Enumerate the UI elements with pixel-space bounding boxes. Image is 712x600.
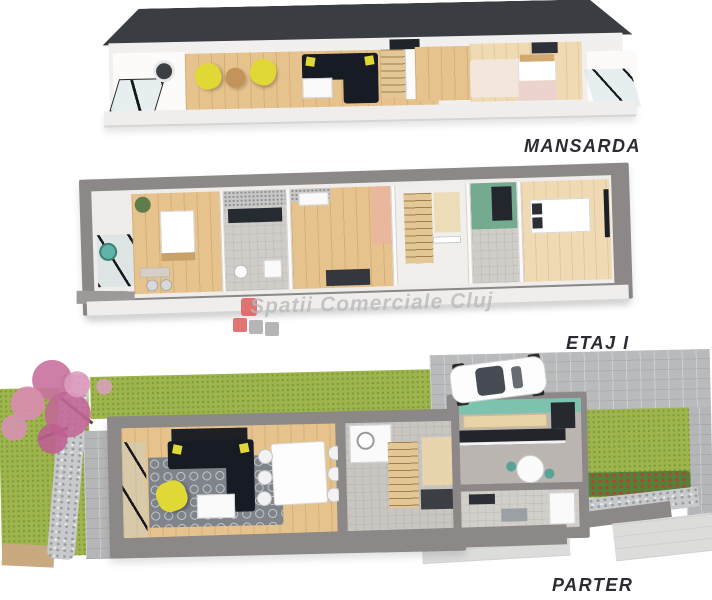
- armchair: [247, 56, 280, 89]
- attic-bedroom-floor: [470, 42, 583, 102]
- powder-room: [349, 424, 392, 463]
- stairwell: [395, 184, 468, 286]
- staircase: [388, 442, 419, 509]
- washer: [356, 432, 374, 450]
- upper-cabinets: [463, 414, 547, 429]
- sofa-cushion: [239, 443, 250, 454]
- bedroom2-floor: [290, 186, 393, 289]
- entry-mat: [421, 489, 453, 510]
- dining-table: [271, 441, 328, 506]
- bedroom-rug: [470, 59, 523, 98]
- bed-foot: [161, 252, 195, 261]
- washing-machine: [264, 259, 283, 278]
- bathroom2-floor: [470, 182, 519, 283]
- round-stove: [153, 60, 175, 82]
- label-parter: PARTER: [552, 576, 633, 594]
- sofa-cushion: [364, 55, 374, 65]
- stair-landing: [422, 437, 453, 486]
- dresser: [298, 192, 328, 206]
- kitchen: [459, 398, 583, 485]
- bedroom3-floor: [521, 179, 612, 282]
- stool: [160, 279, 172, 291]
- car-cabin: [475, 365, 506, 396]
- vanity: [228, 207, 282, 223]
- bed-pillow: [532, 217, 542, 228]
- logo-block-red: [233, 318, 247, 332]
- coffee-table: [197, 494, 236, 519]
- tree-blossom: [64, 371, 91, 398]
- plant: [134, 197, 150, 213]
- vanity: [469, 494, 495, 505]
- glass-door: [97, 234, 135, 287]
- staircase: [403, 193, 433, 264]
- kitchen-table: [516, 455, 545, 484]
- fridge: [551, 402, 576, 429]
- bed-bench: [520, 54, 554, 62]
- attic-hall-floor: [415, 46, 471, 101]
- tree-blossom: [37, 424, 68, 455]
- label-etaj1: ETAJ I: [566, 334, 630, 352]
- kitchen-counter: [459, 428, 565, 445]
- bed-pillow: [532, 203, 542, 214]
- coffee-table-round: [225, 68, 245, 88]
- stair-railing: [433, 236, 461, 244]
- stair-landing: [433, 192, 460, 233]
- tree-blossom: [96, 379, 112, 395]
- toilet: [234, 265, 248, 279]
- kitchen-chair: [506, 461, 516, 471]
- sofa-cushion: [172, 444, 183, 455]
- blossom-tree: [0, 350, 140, 478]
- accent-wall-pink: [370, 186, 392, 245]
- bathroom-tile-wall: [223, 189, 285, 207]
- logo-block-gray: [249, 320, 263, 334]
- shower: [549, 492, 576, 525]
- shower-fixture: [491, 186, 512, 221]
- coffee-table: [302, 78, 332, 99]
- staircase: [381, 49, 406, 97]
- kitchen-chair: [544, 469, 554, 479]
- bath-mat: [501, 508, 527, 522]
- tree-blossom: [1, 414, 28, 441]
- sofa-cushion: [305, 57, 315, 67]
- floor-parter: [0, 337, 712, 581]
- floor-plan-rendering: MANSARDA: [0, 0, 712, 600]
- desk: [140, 267, 170, 278]
- attic-terrace: [113, 52, 186, 117]
- window-frame: [603, 189, 610, 237]
- wardrobe: [326, 269, 370, 286]
- floor-mansarda: [94, 0, 642, 136]
- stool: [146, 279, 158, 291]
- desk: [532, 42, 558, 54]
- bed-blanket: [518, 80, 556, 101]
- bathroom1-floor: [223, 189, 288, 291]
- bedroom1-floor: [131, 191, 222, 294]
- label-mansarda: MANSARDA: [524, 137, 641, 155]
- logo-block-gray: [265, 322, 279, 336]
- armchair: [192, 60, 224, 92]
